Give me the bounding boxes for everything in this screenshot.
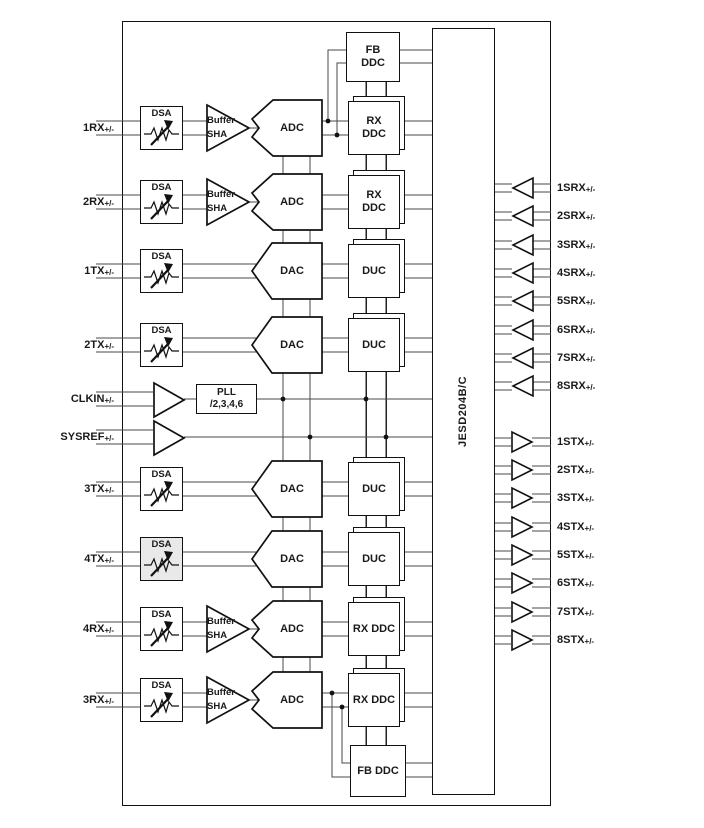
port-label-sysref-text: SYSREF xyxy=(60,431,104,443)
port-label-2rx-suffix: +/- xyxy=(104,199,114,208)
port-label-8stx: 8STX+/- xyxy=(557,632,637,648)
junction-dot xyxy=(364,397,369,402)
jesd-block: JESD204B/C xyxy=(432,28,495,795)
port-label-1srx: 1SRX+/- xyxy=(557,180,637,196)
srx-lane-triangle-1srx xyxy=(510,176,535,200)
buffer-label-1rx: Buffer xyxy=(207,114,249,128)
srx-lane-triangle-6srx xyxy=(510,318,535,342)
junction-dot xyxy=(330,691,335,696)
port-label-8srx: 8SRX+/- xyxy=(557,378,637,394)
port-label-4srx: 4SRX+/- xyxy=(557,265,637,281)
port-label-7stx: 7STX+/- xyxy=(557,604,637,620)
port-label-1stx-suffix: +/- xyxy=(585,439,595,448)
port-label-3srx: 3SRX+/- xyxy=(557,237,637,253)
ddc-duc-label-4rx-0: RX DDC xyxy=(353,623,395,636)
stx-lane-triangle-7stx xyxy=(510,600,535,624)
port-label-4stx-suffix: +/- xyxy=(585,524,595,533)
port-label-2stx-text: 2STX xyxy=(557,464,585,476)
port-label-7stx-text: 7STX xyxy=(557,606,585,618)
pll-label-line2: /2,3,4,6 xyxy=(210,399,243,411)
stx-lane-triangle-2stx xyxy=(510,458,535,482)
port-label-3rx-text: 3RX xyxy=(83,694,104,706)
port-label-8srx-text: 8SRX xyxy=(557,380,586,392)
ddc-duc-block-1tx: DUC xyxy=(348,244,400,298)
attenuator-icon xyxy=(142,480,181,507)
ddc-duc-block-4rx: RX DDC xyxy=(348,602,400,656)
fb-ddc-top-label-line2: DDC xyxy=(361,57,385,70)
port-label-4stx-text: 4STX xyxy=(557,521,585,533)
port-label-5srx-suffix: +/- xyxy=(586,298,596,307)
port-label-2tx-suffix: +/- xyxy=(104,342,114,351)
attenuator-icon xyxy=(142,550,181,577)
buffer-sha-label-3rx: BufferSHA xyxy=(207,686,249,714)
port-label-2srx-suffix: +/- xyxy=(586,213,596,222)
port-label-1srx-text: 1SRX xyxy=(557,182,586,194)
stx-lane-triangle-1stx xyxy=(510,430,535,454)
port-label-2stx-suffix: +/- xyxy=(585,467,595,476)
buffer-label-4rx: Buffer xyxy=(207,615,249,629)
srx-lane-triangle-4srx xyxy=(510,261,535,285)
port-label-7srx: 7SRX+/- xyxy=(557,350,637,366)
port-label-sysref: SYSREF+/- xyxy=(24,429,114,445)
port-label-1tx-suffix: +/- xyxy=(104,268,114,277)
converter-label-3rx: ADC xyxy=(262,693,322,707)
port-label-clkin-text: CLKIN xyxy=(71,393,105,405)
dsa-label-3tx: DSA xyxy=(141,469,182,480)
port-label-1rx-suffix: +/- xyxy=(104,125,114,134)
port-label-5srx-text: 5SRX xyxy=(557,295,586,307)
port-label-1tx: 1TX+/- xyxy=(24,263,114,279)
jesd-label: JESD204B/C xyxy=(457,376,470,447)
dsa-label-1tx: DSA xyxy=(141,251,182,262)
port-label-5stx-suffix: +/- xyxy=(585,552,595,561)
buffer-sha-label-2rx: BufferSHA xyxy=(207,188,249,216)
port-label-3tx: 3TX+/- xyxy=(24,481,114,497)
port-label-6stx-suffix: +/- xyxy=(585,580,595,589)
dsa-label-2tx: DSA xyxy=(141,325,182,336)
buffer-label-3rx: Buffer xyxy=(207,686,249,700)
ddc-duc-block-2tx: DUC xyxy=(348,318,400,372)
attenuator-icon xyxy=(142,119,181,146)
buffer-sha-label-1rx: BufferSHA xyxy=(207,114,249,142)
srx-lane-triangle-2srx xyxy=(510,204,535,228)
port-label-5srx: 5SRX+/- xyxy=(557,293,637,309)
port-label-2rx-text: 2RX xyxy=(83,196,104,208)
port-label-6stx: 6STX+/- xyxy=(557,575,637,591)
stx-lane-triangle-4stx xyxy=(510,515,535,539)
attenuator-icon xyxy=(142,262,181,289)
fb-ddc-bottom-label: FB DDC xyxy=(357,765,399,778)
port-label-clkin: CLKIN+/- xyxy=(24,391,114,407)
junction-dot xyxy=(308,435,313,440)
port-label-clkin-suffix: +/- xyxy=(104,396,114,405)
srx-lane-triangle-3srx xyxy=(510,233,535,257)
port-label-5stx-text: 5STX xyxy=(557,549,585,561)
stx-lane-triangle-8stx xyxy=(510,628,535,652)
port-label-3stx-text: 3STX xyxy=(557,492,585,504)
port-label-1tx-text: 1TX xyxy=(84,265,104,277)
srx-lane-triangle-5srx xyxy=(510,289,535,313)
dsa-label-2rx: DSA xyxy=(141,182,182,193)
sha-label-3rx: SHA xyxy=(207,700,249,714)
dsa-label-3rx: DSA xyxy=(141,680,182,691)
port-label-4tx: 4TX+/- xyxy=(24,551,114,567)
ddc-duc-label-3rx-0: RX DDC xyxy=(353,694,395,707)
ddc-duc-label-4tx-0: DUC xyxy=(362,553,386,566)
junction-dot xyxy=(384,435,389,440)
dsa-block-4tx: DSA xyxy=(140,537,183,581)
port-label-2rx: 2RX+/- xyxy=(24,194,114,210)
port-label-3rx-suffix: +/- xyxy=(104,697,114,706)
port-label-2srx: 2SRX+/- xyxy=(557,208,637,224)
port-label-4rx-text: 4RX xyxy=(83,623,104,635)
ddc-duc-block-3rx: RX DDC xyxy=(348,673,400,727)
port-label-2tx-text: 2TX xyxy=(84,339,104,351)
port-label-2stx: 2STX+/- xyxy=(557,462,637,478)
port-label-4tx-suffix: +/- xyxy=(104,556,114,565)
port-label-3tx-text: 3TX xyxy=(84,483,104,495)
port-label-1rx-text: 1RX xyxy=(83,122,104,134)
pll-block: PLL /2,3,4,6 xyxy=(196,384,257,414)
port-label-sysref-suffix: +/- xyxy=(104,434,114,443)
ddc-duc-block-4tx: DUC xyxy=(348,532,400,586)
port-label-1stx: 1STX+/- xyxy=(557,434,637,450)
transceiver-block-diagram: JESD204B/C FB DDC FB DDC PLL /2,3,4,6 CL… xyxy=(0,0,704,828)
converter-label-2rx: ADC xyxy=(262,195,322,209)
clkin-buffer xyxy=(152,381,186,419)
dsa-label-4rx: DSA xyxy=(141,609,182,620)
port-label-8srx-suffix: +/- xyxy=(586,383,596,392)
port-label-4stx: 4STX+/- xyxy=(557,519,637,535)
buffer-sha-label-4rx: BufferSHA xyxy=(207,615,249,643)
stx-lane-triangle-5stx xyxy=(510,543,535,567)
attenuator-icon xyxy=(142,336,181,363)
junction-dot xyxy=(281,397,286,402)
port-label-4tx-text: 4TX xyxy=(84,553,104,565)
junction-dot xyxy=(326,119,331,124)
ddc-duc-label-3tx-0: DUC xyxy=(362,483,386,496)
port-label-1srx-suffix: +/- xyxy=(586,185,596,194)
port-label-3srx-text: 3SRX xyxy=(557,239,586,251)
dsa-block-2tx: DSA xyxy=(140,323,183,367)
sha-label-4rx: SHA xyxy=(207,629,249,643)
dsa-block-3rx: DSA xyxy=(140,678,183,722)
port-label-3stx-suffix: +/- xyxy=(585,495,595,504)
port-label-3tx-suffix: +/- xyxy=(104,486,114,495)
converter-label-1tx: DAC xyxy=(262,264,322,278)
ddc-duc-label-2rx-1: DDC xyxy=(362,202,386,215)
dsa-label-1rx: DSA xyxy=(141,108,182,119)
srx-lane-triangle-7srx xyxy=(510,346,535,370)
sha-label-2rx: SHA xyxy=(207,202,249,216)
junction-dot xyxy=(340,705,345,710)
sha-label-1rx: SHA xyxy=(207,128,249,142)
port-label-3srx-suffix: +/- xyxy=(586,242,596,251)
dsa-block-1tx: DSA xyxy=(140,249,183,293)
port-label-1stx-text: 1STX xyxy=(557,436,585,448)
converter-label-4tx: DAC xyxy=(262,552,322,566)
port-label-3stx: 3STX+/- xyxy=(557,490,637,506)
junction-dot xyxy=(335,133,340,138)
port-label-4srx-text: 4SRX xyxy=(557,267,586,279)
attenuator-icon xyxy=(142,620,181,647)
attenuator-icon xyxy=(142,691,181,718)
attenuator-icon xyxy=(142,193,181,220)
srx-lane-triangle-8srx xyxy=(510,374,535,398)
dsa-block-1rx: DSA xyxy=(140,106,183,150)
converter-label-3tx: DAC xyxy=(262,482,322,496)
sysref-buffer xyxy=(152,419,186,457)
port-label-7srx-text: 7SRX xyxy=(557,352,586,364)
ddc-duc-block-2rx: RXDDC xyxy=(348,175,400,229)
buffer-label-2rx: Buffer xyxy=(207,188,249,202)
dsa-block-3tx: DSA xyxy=(140,467,183,511)
converter-label-4rx: ADC xyxy=(262,622,322,636)
fb-ddc-top-block: FB DDC xyxy=(346,32,400,82)
port-label-6stx-text: 6STX xyxy=(557,577,585,589)
ddc-duc-block-3tx: DUC xyxy=(348,462,400,516)
port-label-4rx-suffix: +/- xyxy=(104,626,114,635)
fb-ddc-top-label-line1: FB xyxy=(366,44,381,57)
pll-label-line1: PLL xyxy=(217,387,236,399)
ddc-duc-label-1rx-0: RX xyxy=(366,115,381,128)
ddc-duc-label-2rx-0: RX xyxy=(366,189,381,202)
fb-ddc-bottom-block: FB DDC xyxy=(350,745,406,797)
port-label-6srx-text: 6SRX xyxy=(557,324,586,336)
dsa-block-4rx: DSA xyxy=(140,607,183,651)
dsa-block-2rx: DSA xyxy=(140,180,183,224)
ddc-duc-label-1tx-0: DUC xyxy=(362,265,386,278)
port-label-4rx: 4RX+/- xyxy=(24,621,114,637)
port-label-2srx-text: 2SRX xyxy=(557,210,586,222)
converter-label-1rx: ADC xyxy=(262,121,322,135)
port-label-4srx-suffix: +/- xyxy=(586,270,596,279)
dsa-label-4tx: DSA xyxy=(141,539,182,550)
ddc-duc-label-1rx-1: DDC xyxy=(362,128,386,141)
port-label-2tx: 2TX+/- xyxy=(24,337,114,353)
stx-lane-triangle-3stx xyxy=(510,486,535,510)
ddc-duc-block-1rx: RXDDC xyxy=(348,101,400,155)
ddc-duc-label-2tx-0: DUC xyxy=(362,339,386,352)
port-label-1rx: 1RX+/- xyxy=(24,120,114,136)
port-label-7stx-suffix: +/- xyxy=(585,609,595,618)
stx-lane-triangle-6stx xyxy=(510,571,535,595)
port-label-8stx-text: 8STX xyxy=(557,634,585,646)
port-label-6srx: 6SRX+/- xyxy=(557,322,637,338)
port-label-8stx-suffix: +/- xyxy=(585,637,595,646)
port-label-5stx: 5STX+/- xyxy=(557,547,637,563)
port-label-6srx-suffix: +/- xyxy=(586,327,596,336)
port-label-7srx-suffix: +/- xyxy=(586,355,596,364)
port-label-3rx: 3RX+/- xyxy=(24,692,114,708)
converter-label-2tx: DAC xyxy=(262,338,322,352)
